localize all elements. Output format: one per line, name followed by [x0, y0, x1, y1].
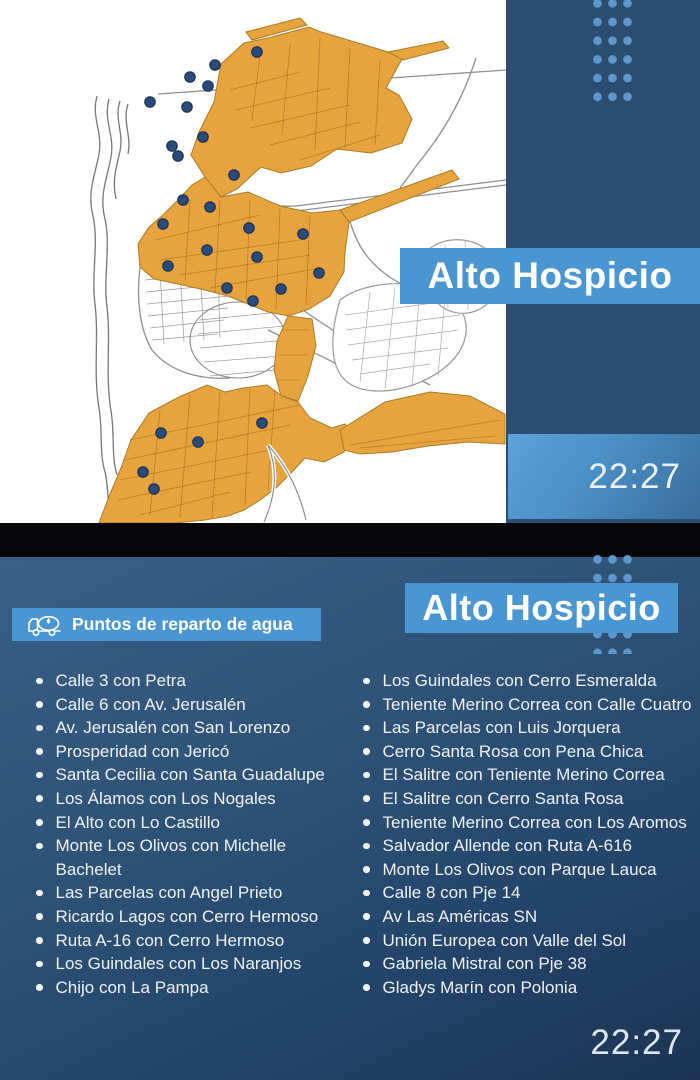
bullet-icon — [36, 678, 43, 685]
water-point-item: Gabriela Mistral con Pje 38 — [363, 952, 693, 976]
ravine-lines — [91, 96, 129, 522]
city-title-banner-2: Alto Hospicio — [405, 583, 678, 633]
bullet-icon — [36, 961, 43, 968]
bullet-icon — [363, 748, 370, 755]
bullet-icon — [36, 819, 43, 826]
water-point-item: Los Álamos con Los Nogales — [36, 787, 328, 811]
map-slide: Alto Hospicio 22:27 — [0, 0, 700, 523]
section-header-label: Puntos de reparto de agua — [72, 614, 293, 635]
water-points-list-right: Los Guindales con Cerro Esmeralda Tenien… — [363, 669, 693, 999]
bullet-icon — [36, 984, 43, 991]
water-point-item: Gladys Marín con Polonia — [363, 976, 693, 1000]
bullet-icon — [363, 725, 370, 732]
bullet-icon — [36, 843, 43, 850]
water-points-list-left: Calle 3 con Petra Calle 6 con Av. Jerusa… — [36, 669, 328, 999]
water-point-item: El Alto con Lo Castillo — [36, 811, 328, 835]
water-point-item: Av. Jerusalén con San Lorenzo — [36, 716, 328, 740]
city-title: Alto Hospicio — [428, 255, 673, 297]
bullet-icon — [363, 819, 370, 826]
bullet-icon — [363, 890, 370, 897]
water-point-item: Unión Europea con Valle del Sol — [363, 929, 693, 953]
water-points-slide: Alto Hospicio Puntos de reparto de agua … — [0, 557, 700, 1080]
water-point-item: Chijo con La Pampa — [36, 976, 328, 1000]
section-header: Puntos de reparto de agua — [12, 608, 321, 641]
water-point-item: Cerro Santa Rosa con Pena Chica — [363, 740, 693, 764]
water-point-item: Los Guindales con Cerro Esmeralda — [363, 669, 693, 693]
bullet-icon — [363, 937, 370, 944]
bullet-icon — [36, 913, 43, 920]
bullet-icon — [36, 701, 43, 708]
infographic: Alto Hospicio 22:27 Alto Hospicio — [0, 0, 700, 1080]
time-text: 22:27 — [588, 457, 700, 497]
water-point-item: Calle 8 con Pje 14 — [363, 881, 693, 905]
water-truck-icon — [27, 611, 63, 638]
bullet-icon — [36, 937, 43, 944]
water-point-item: El Salitre con Teniente Merino Correa — [363, 763, 693, 787]
water-point-item: Las Parcelas con Luis Jorquera — [363, 716, 693, 740]
water-point-item: Calle 3 con Petra — [36, 669, 328, 693]
time-text-bottom: 22:27 — [590, 1023, 683, 1063]
bullet-icon — [36, 890, 43, 897]
water-point-item: Prosperidad con Jericó — [36, 740, 328, 764]
water-point-item: Teniente Merino Correa con Calle Cuatro — [363, 693, 693, 717]
bullet-icon — [363, 772, 370, 779]
water-point-item: Teniente Merino Correa con Los Aromos — [363, 811, 693, 835]
city-title-2: Alto Hospicio — [422, 587, 661, 629]
bullet-icon — [363, 866, 370, 873]
bullet-icon — [363, 701, 370, 708]
dot-decoration-top — [590, 0, 636, 102]
bullet-icon — [36, 772, 43, 779]
city-title-banner: Alto Hospicio — [400, 248, 700, 304]
bullet-icon — [363, 961, 370, 968]
bullet-icon — [363, 984, 370, 991]
bullet-icon — [36, 795, 43, 802]
bullet-icon — [36, 748, 43, 755]
water-point-item: Calle 6 con Av. Jerusalén — [36, 693, 328, 717]
water-point-item: Monte Los Olivos con Parque Lauca — [363, 858, 693, 882]
bullet-icon — [363, 795, 370, 802]
water-point-item: Salvador Allende con Ruta A-616 — [363, 834, 693, 858]
water-point-item: Monte Los Olivos con Michelle Bachelet — [36, 834, 328, 881]
time-badge: 22:27 — [508, 434, 700, 519]
water-point-item: Av Las Américas SN — [363, 905, 693, 929]
bullet-icon — [363, 843, 370, 850]
water-point-item: Las Parcelas con Angel Prieto — [36, 881, 328, 905]
bullet-icon — [363, 678, 370, 685]
water-point-item: Ruta A-16 con Cerro Hermoso — [36, 929, 328, 953]
water-point-item: Santa Cecilia con Santa Guadalupe — [36, 763, 328, 787]
water-point-item: Ricardo Lagos con Cerro Hermoso — [36, 905, 328, 929]
water-point-item: Los Guindales con Los Naranjos — [36, 952, 328, 976]
water-point-item: El Salitre con Cerro Santa Rosa — [363, 787, 693, 811]
bullet-icon — [363, 913, 370, 920]
bullet-icon — [36, 725, 43, 732]
